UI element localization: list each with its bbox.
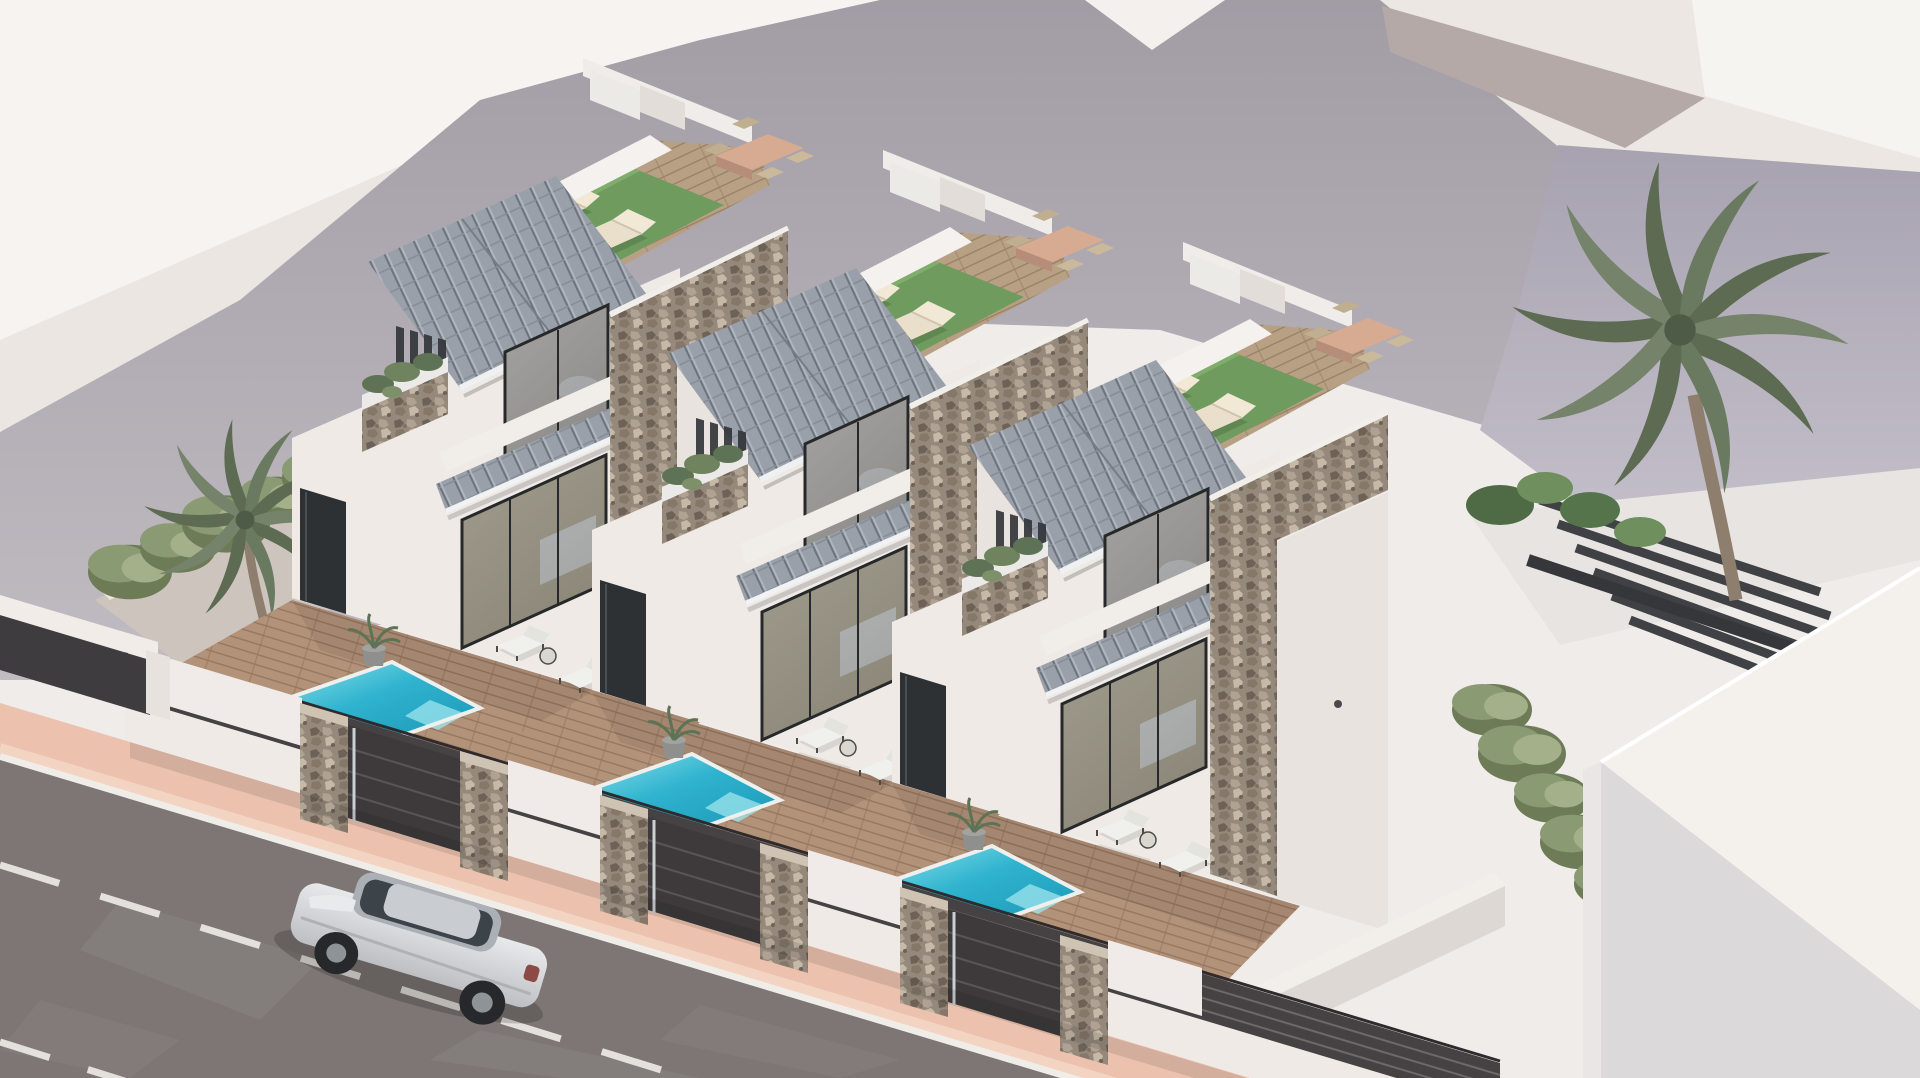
- neighbor-roof-left-edge: [1583, 762, 1601, 1078]
- render-canvas: [0, 0, 1920, 1078]
- architectural-render: [0, 0, 1920, 1078]
- carport-post: [146, 650, 170, 720]
